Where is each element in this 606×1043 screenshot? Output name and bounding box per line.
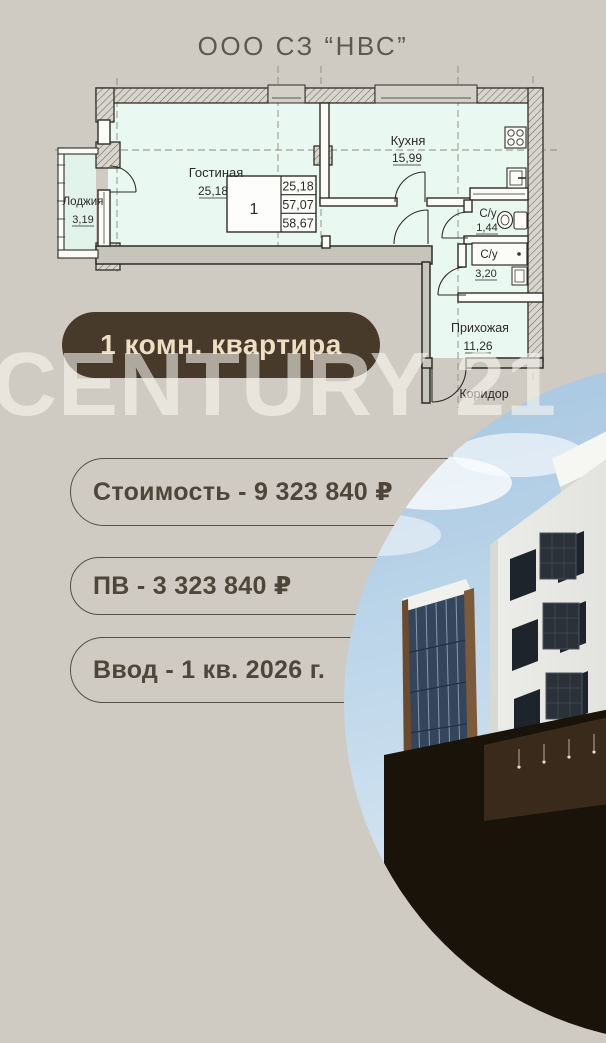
room-label-loggia: Лоджия	[63, 196, 104, 208]
room-area-kitchen: 15,99	[392, 151, 422, 165]
down-payment-label: ПВ - 3 323 840 ₽	[93, 571, 292, 601]
flyer-page: { "header": { "title": "ООО СЗ “НВС”" },…	[0, 0, 606, 758]
room-label-bath-big: С/у	[480, 249, 498, 261]
room-area-living: 25,18	[198, 184, 228, 198]
apartment-type-badge: 1 комн. квартира	[62, 312, 380, 378]
room-area-loggia: 3,19	[72, 214, 93, 226]
room-label-kitchen: Кухня	[391, 133, 426, 148]
room-label-bath-small: С/у	[479, 208, 497, 220]
room-label-living: Гостиная	[189, 165, 244, 180]
washer-icon	[512, 267, 527, 285]
table-living-area: 25,18	[282, 180, 313, 194]
mesh-balconies	[540, 533, 582, 719]
room-area-bath-big: 3,20	[475, 268, 496, 280]
room-area-hallway: 11,26	[463, 339, 492, 353]
apartment-type-label: 1 комн. квартира	[100, 329, 342, 361]
table-total-area: 58,67	[282, 217, 313, 231]
area-table: 1 25,18 57,07 58,67	[227, 176, 316, 232]
stove-icon	[505, 127, 526, 148]
room-label-hallway: Прихожая	[451, 321, 509, 335]
kitchen-sink-icon	[507, 168, 526, 188]
room-area-bath-small: 1,44	[476, 222, 497, 234]
table-unit-number: 1	[250, 201, 259, 218]
completion-label: Ввод - 1 кв. 2026 г.	[93, 656, 325, 685]
table-usable-area: 57,07	[282, 198, 313, 212]
price-label: Стоимость - 9 323 840 ₽	[93, 477, 393, 507]
room-label-corridor: Коридор	[459, 387, 508, 401]
